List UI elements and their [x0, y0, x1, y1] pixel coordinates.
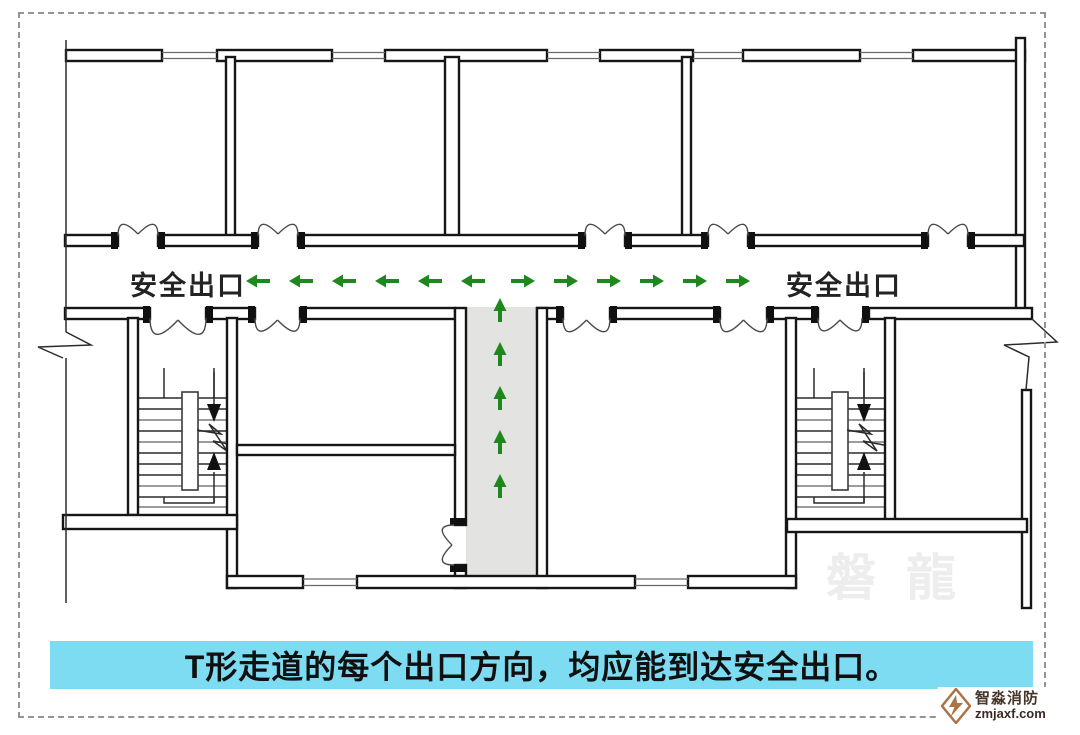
brand-logo: 智淼消防 zmjaxf.com	[938, 687, 1049, 725]
logo-title: 智淼消防	[975, 691, 1046, 707]
caption-text: T形走道的每个出口方向，均应能到达安全出口。	[185, 642, 899, 688]
diagram-canvas: 磐龍	[0, 0, 1080, 735]
exit-label-right: 安全出口	[786, 264, 906, 294]
exit-label-left: 安全出口	[130, 264, 250, 294]
logo-domain: zmjaxf.com	[975, 707, 1046, 721]
dashed-border	[18, 12, 1046, 718]
caption-bar: T形走道的每个出口方向，均应能到达安全出口。	[50, 641, 1033, 689]
diamond-logo-icon	[941, 688, 971, 724]
